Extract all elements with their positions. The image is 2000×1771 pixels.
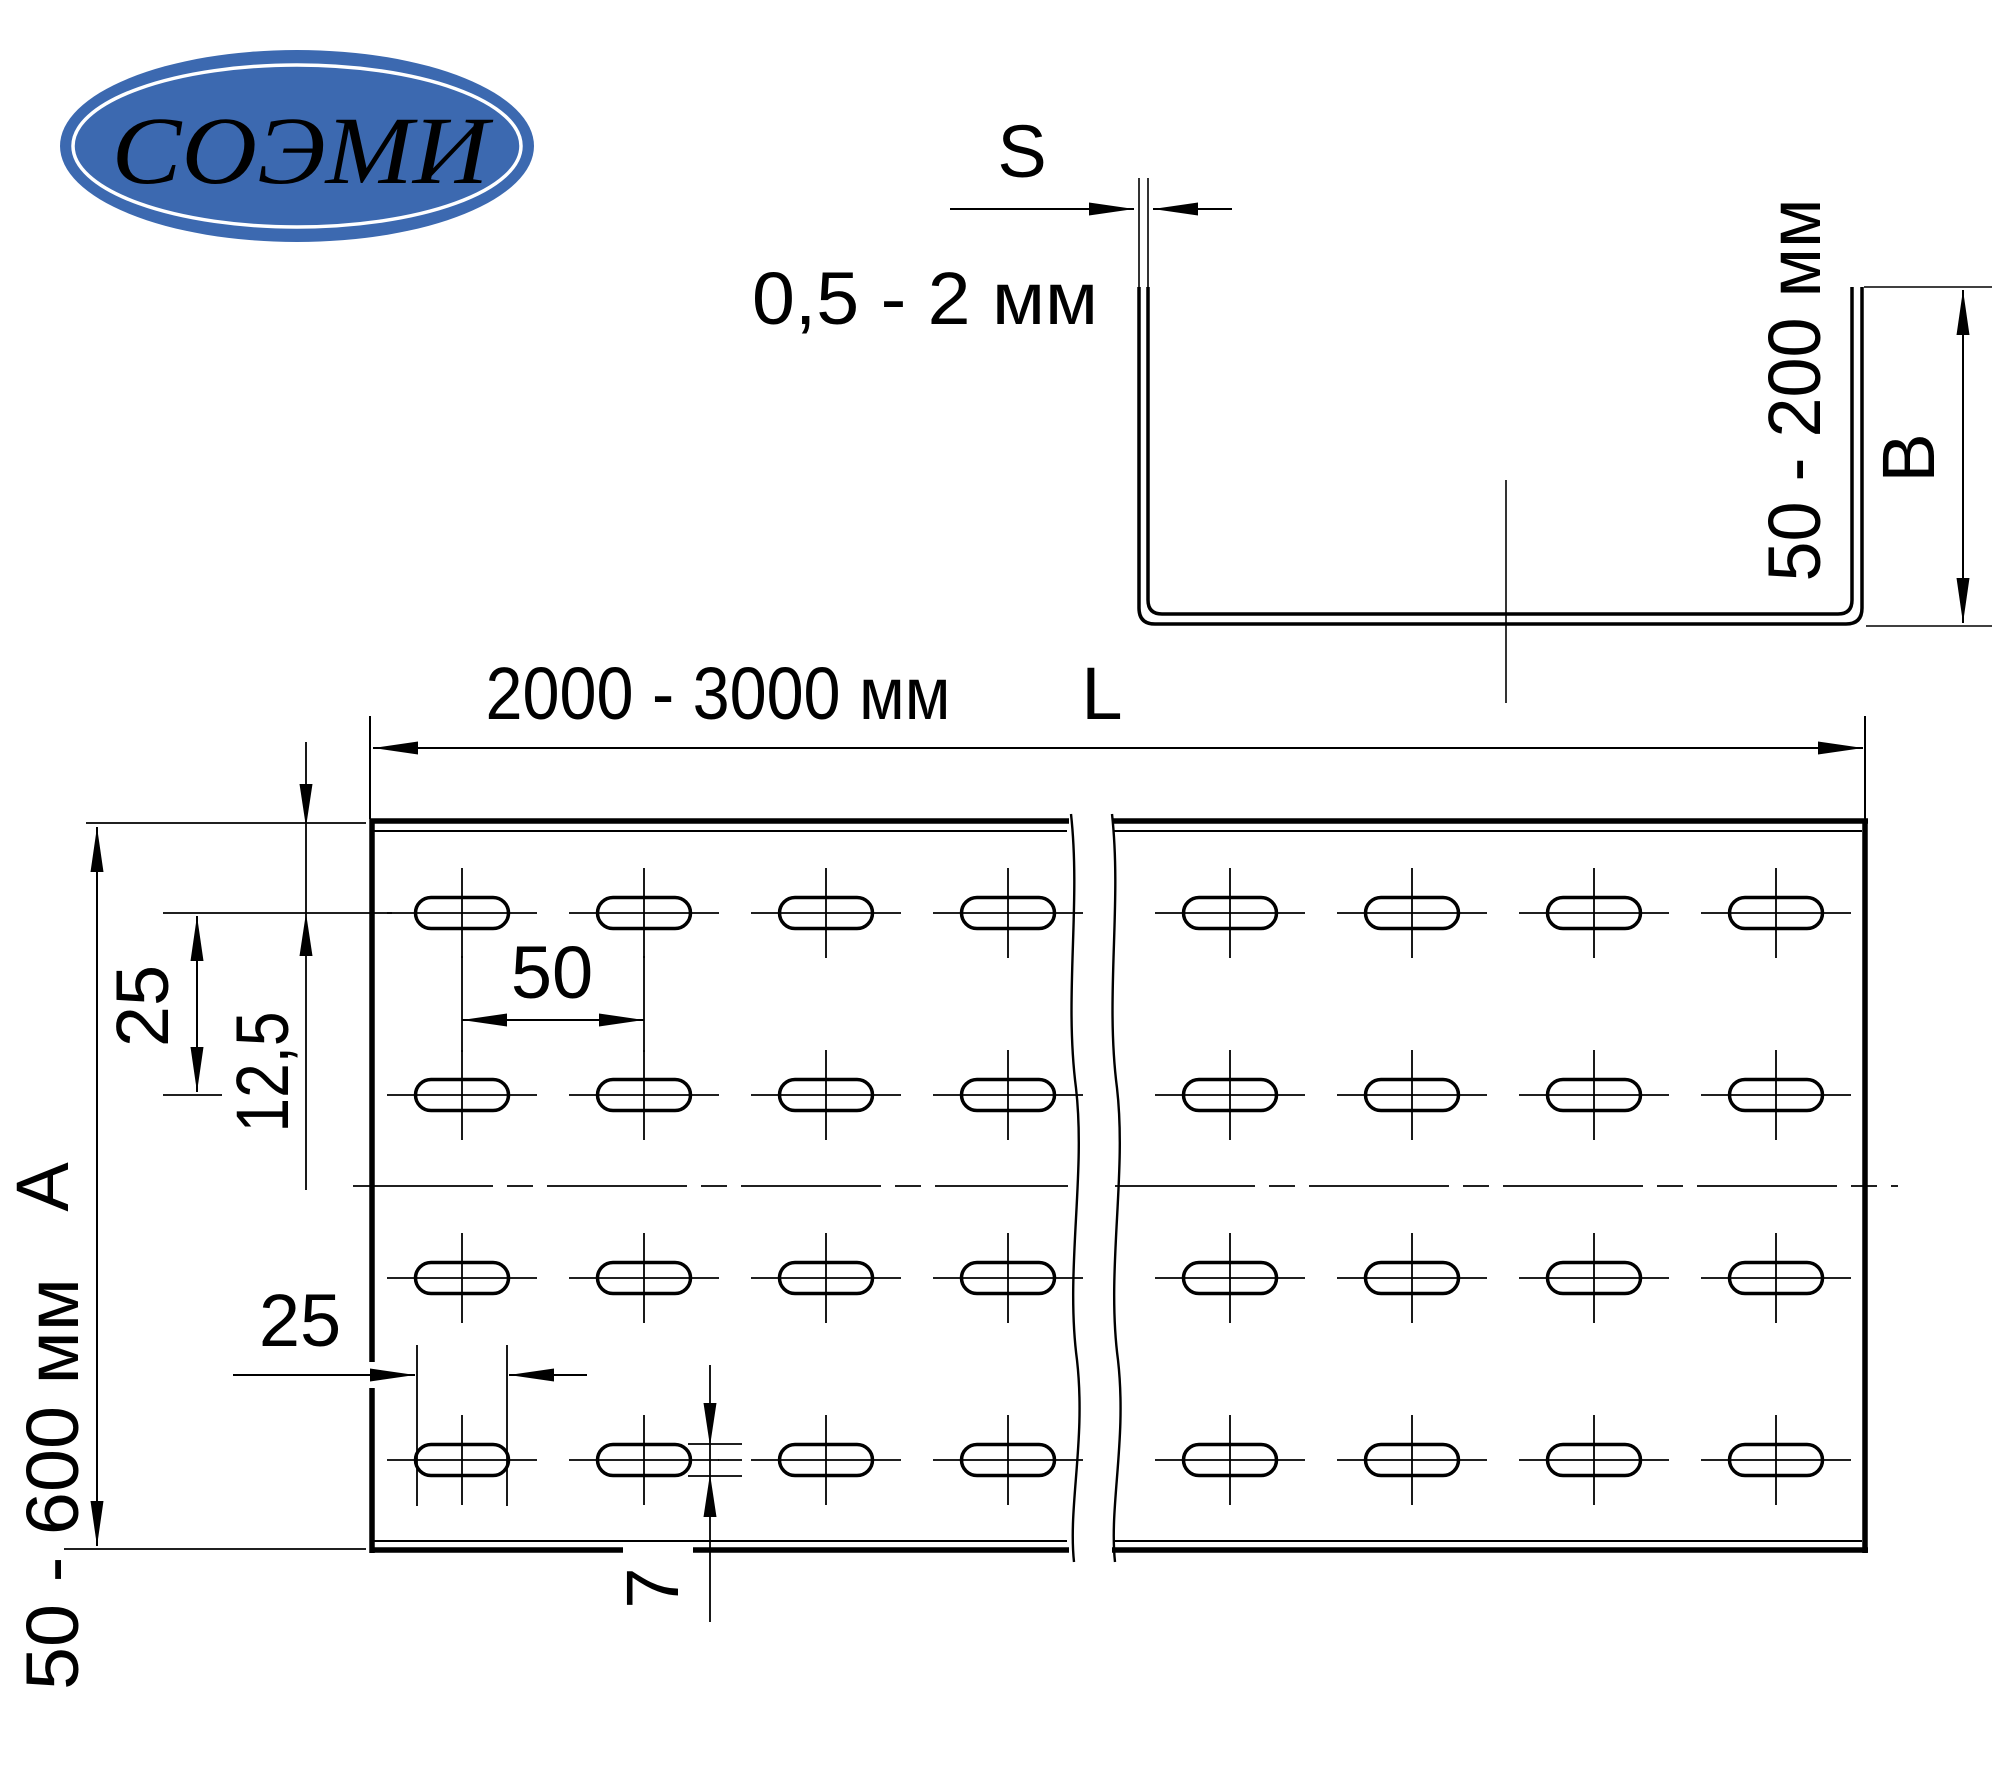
slot-width-arrow-down: [704, 1403, 717, 1446]
first-row-offset-value: 12,5: [221, 1012, 304, 1133]
dim-first-row-offset: 12,5: [221, 742, 313, 1190]
width-value: 50 - 600 мм: [11, 1278, 94, 1690]
slot-width-arrow-up: [704, 1474, 717, 1517]
side-view-section: S 0,5 - 2 мм 50 - 200 мм B: [752, 110, 1992, 703]
slot-width-value: 7: [611, 1567, 694, 1608]
width-letter: A: [1, 1162, 84, 1212]
break-line-right: [1112, 814, 1121, 1562]
dim-column-pitch: 50: [462, 931, 644, 1052]
length-value: 2000 - 3000 мм: [486, 652, 951, 735]
drawing-sheet: СОЭМИ S 0,5 - 2 мм 50 - 200 мм B: [0, 0, 2000, 1771]
technical-drawing: СОЭМИ S 0,5 - 2 мм 50 - 200 мм B: [0, 0, 2000, 1771]
thickness-letter: S: [997, 110, 1046, 193]
logo: СОЭМИ: [60, 50, 534, 242]
top-view-plan: 2000 - 3000 мм L A 50 - 600 мм 25 12,5: [1, 652, 1898, 1690]
dim-length: 2000 - 3000 мм L: [370, 652, 1865, 822]
dim-slot-length: 25: [233, 1279, 587, 1506]
thickness-value: 0,5 - 2 мм: [752, 257, 1098, 340]
offset-arrow-up: [300, 913, 313, 956]
row-pitch-value: 25: [101, 965, 184, 1047]
break-lines: [1071, 814, 1121, 1562]
height-letter: B: [1867, 433, 1950, 482]
slot-length-value: 25: [259, 1279, 341, 1362]
column-pitch-value: 50: [511, 931, 593, 1014]
channel-inner-contour: [1148, 287, 1852, 614]
dim-slot-width: 7: [611, 1365, 742, 1622]
dim-thickness: S 0,5 - 2 мм: [752, 110, 1232, 340]
break-line-left: [1071, 814, 1080, 1562]
length-letter: L: [1081, 652, 1122, 735]
logo-text: СОЭМИ: [112, 97, 494, 204]
dim-height: 50 - 200 мм B: [1753, 199, 1992, 627]
offset-arrow-down: [300, 784, 313, 827]
height-value: 50 - 200 мм: [1753, 199, 1836, 582]
